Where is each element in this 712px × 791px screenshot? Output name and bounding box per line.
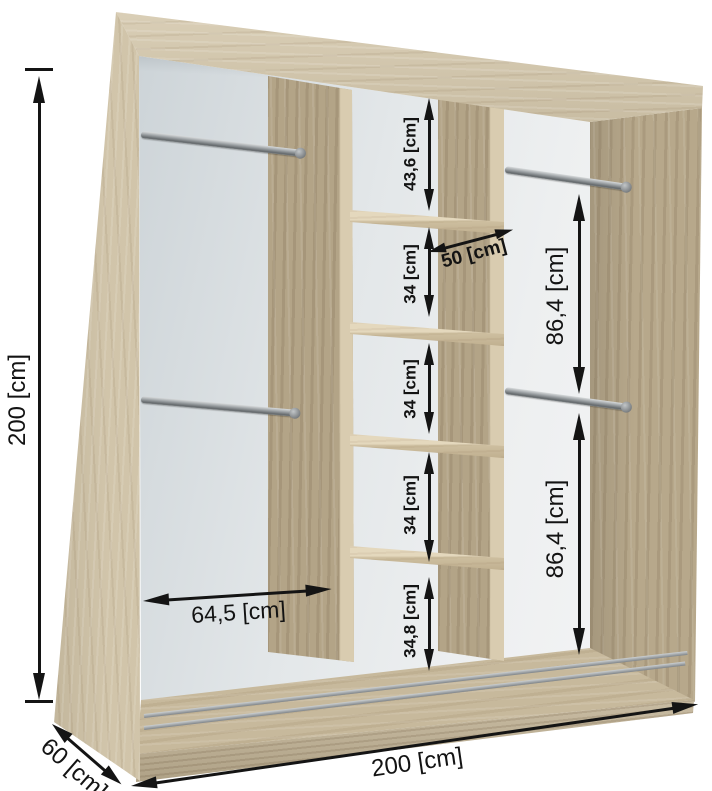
arrowhead-icon	[573, 194, 585, 221]
arrowhead-icon	[573, 367, 585, 394]
arrowhead-icon	[305, 582, 332, 596]
arrowhead-icon	[573, 628, 585, 655]
dimension-left-compartment-width-label: 64,5 [cm]	[190, 598, 286, 627]
arrowhead-icon	[573, 413, 585, 440]
dimension-hanging-1-label: 86,4 [cm]	[544, 247, 568, 346]
dimension-line	[578, 218, 581, 370]
dimension-hanging-2-label: 86,4 [cm]	[544, 480, 568, 579]
dimension-right-sections: 86,4 [cm] 86,4 [cm]	[0, 0, 712, 791]
dimension-line	[578, 437, 581, 629]
wardrobe-dimension-diagram: 200 [cm] 43,6 [cm] 34 [cm] 34 [cm] 34 [c…	[0, 0, 712, 791]
